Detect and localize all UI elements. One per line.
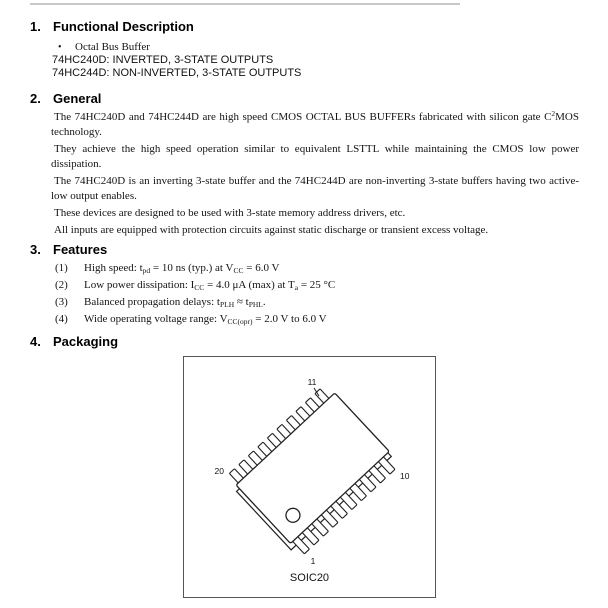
- general-paragraph-2: They achieve the high speed operation si…: [51, 142, 579, 172]
- feature-text: Wide operating voltage range: VCC(opr) =…: [84, 311, 327, 328]
- package-drawing-box: 11 20 10 1 SOIC20: [183, 356, 436, 598]
- section-heading-packaging: 4. Packaging: [30, 335, 579, 349]
- section-title: Features: [53, 243, 107, 257]
- section-title: Functional Description: [53, 20, 194, 34]
- feature-number: (4): [55, 311, 84, 328]
- feature-number: (1): [55, 260, 84, 277]
- header-rule: [30, 3, 460, 5]
- feature-text: Balanced propagation delays: tPLH ≈ tPHL…: [84, 294, 266, 311]
- chip-group: [227, 383, 401, 556]
- section-heading-functional-description: 1. Functional Description: [30, 20, 579, 34]
- bullet-item: • Octal Bus Buffer: [58, 41, 579, 54]
- feature-text: Low power dissipation: ICC = 4.0 μA (max…: [84, 277, 335, 294]
- feature-item-low-power: (2) Low power dissipation: ICC = 4.0 μA …: [55, 277, 579, 294]
- section-number: 4.: [30, 335, 53, 349]
- package-caption: SOIC20: [184, 572, 435, 584]
- chip-body: [236, 393, 389, 544]
- variant-74hc240d: 74HC240D: INVERTED, 3-STATE OUTPUTS: [52, 54, 579, 67]
- general-paragraph-1: The 74HC240D and 74HC244D are high speed…: [51, 110, 579, 140]
- pin-label-11: 11: [308, 377, 317, 387]
- section-title: General: [53, 92, 101, 106]
- pin-label-10: 10: [400, 471, 410, 481]
- feature-number: (3): [55, 294, 84, 311]
- general-paragraph-4: These devices are designed to be used wi…: [51, 206, 579, 221]
- bullet-icon: •: [58, 41, 75, 54]
- soic20-package-drawing: 11 20 10 1: [184, 357, 434, 596]
- variant-74hc244d: 74HC244D: NON-INVERTED, 3-STATE OUTPUTS: [52, 67, 579, 80]
- device-variants: 74HC240D: INVERTED, 3-STATE OUTPUTS 74HC…: [52, 54, 579, 80]
- feature-item-balanced-delays: (3) Balanced propagation delays: tPLH ≈ …: [55, 294, 579, 311]
- bullet-text: Octal Bus Buffer: [75, 41, 150, 54]
- datasheet-page: 1. Functional Description • Octal Bus Bu…: [0, 0, 608, 608]
- section-heading-general: 2. General: [30, 92, 579, 106]
- feature-number: (2): [55, 277, 84, 294]
- document-content: 1. Functional Description • Octal Bus Bu…: [30, 12, 579, 598]
- pin-label-20: 20: [215, 466, 225, 476]
- feature-text: High speed: tpd = 10 ns (typ.) at VCC = …: [84, 260, 279, 277]
- section-heading-features: 3. Features: [30, 243, 579, 257]
- paragraph-text: The 74HC240D and 74HC244D are high speed…: [54, 111, 551, 123]
- section-number: 2.: [30, 92, 53, 106]
- section-number: 3.: [30, 243, 53, 257]
- general-paragraph-3: The 74HC240D is an inverting 3-state buf…: [51, 174, 579, 204]
- feature-item-voltage-range: (4) Wide operating voltage range: VCC(op…: [55, 311, 579, 328]
- section-number: 1.: [30, 20, 53, 34]
- features-list: (1) High speed: tpd = 10 ns (typ.) at VC…: [30, 260, 579, 328]
- section-title: Packaging: [53, 335, 118, 349]
- pin-label-1: 1: [311, 556, 316, 566]
- general-paragraph-5: All inputs are equipped with protection …: [51, 223, 579, 238]
- feature-item-high-speed: (1) High speed: tpd = 10 ns (typ.) at VC…: [55, 260, 579, 277]
